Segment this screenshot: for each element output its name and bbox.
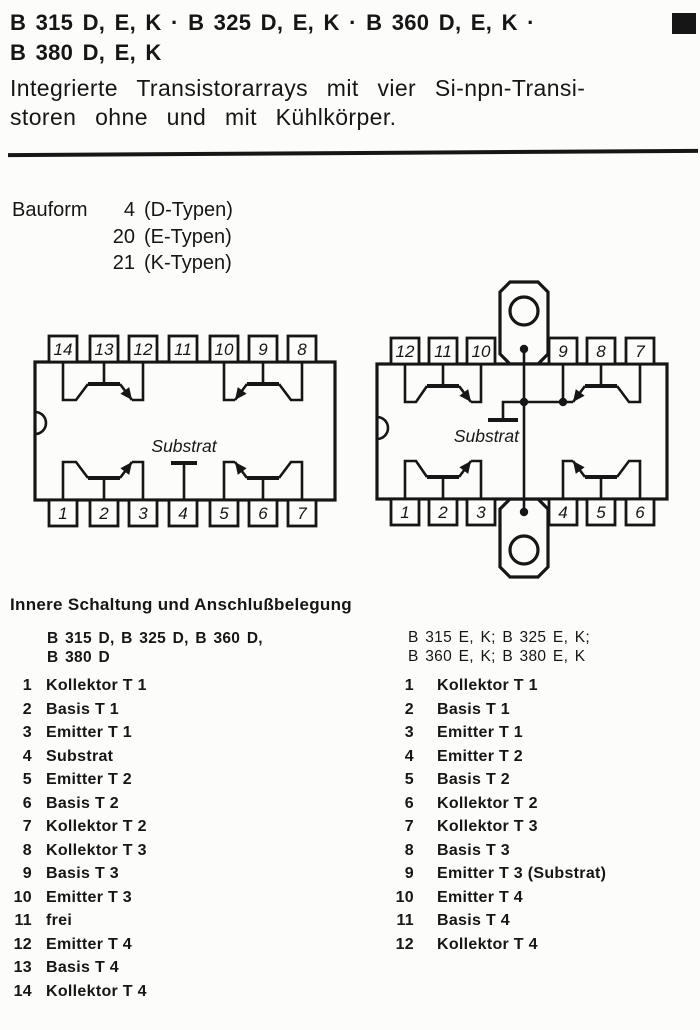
pin-number: 10 [6, 889, 32, 907]
subtitle-line-1: Integrierte Transistorarrays mit vier Si… [10, 74, 585, 103]
pin-function-label: Kollektor T 1 [437, 677, 538, 695]
pin-number: 8 [388, 842, 414, 860]
pin-list-item: 6 Basis T 2 [6, 795, 147, 819]
pin-number: 4 [388, 748, 414, 766]
pin-number: 9 [388, 865, 414, 883]
bauform-number: 20 [108, 224, 135, 251]
pin-list-item: 8 Kollektor T 3 [6, 842, 147, 866]
pinout-right-title: B 315 E, K; B 325 E, K; B 360 E, K; B 38… [408, 628, 590, 666]
pin-list-item: 7 Kollektor T 2 [6, 818, 147, 842]
pin-function-label: Kollektor T 3 [437, 818, 538, 836]
bauform-description: (K-Typen) [144, 250, 232, 277]
substrate-label: Substrat [151, 436, 217, 456]
pin-function-label: Emitter T 3 [46, 889, 132, 907]
pin-function-label: Basis T 1 [437, 701, 510, 719]
pin-number: 11 [174, 340, 192, 359]
pin-number: 3 [6, 724, 32, 742]
pin-list-d-types: 1 Kollektor T 1 2 Basis T 1 3 Emitter T … [6, 677, 147, 1006]
pin-number: 8 [596, 342, 606, 361]
pin-number: 3 [138, 504, 148, 523]
pinout-left-title-line-1: B 315 D, B 325 D, B 360 D, [47, 629, 263, 648]
pin-function-label: Kollektor T 4 [46, 983, 147, 1001]
page-title: B 315 D, E, K · B 325 D, E, K · B 360 D,… [10, 8, 535, 68]
pin-number: 1 [6, 677, 32, 695]
pin-function-label: Kollektor T 2 [437, 795, 538, 813]
pin-number: 2 [388, 701, 414, 719]
substrate-label: Substrat [454, 426, 520, 446]
pin-number: 8 [297, 340, 307, 359]
pin-number: 6 [6, 795, 32, 813]
pin-number: 14 [54, 340, 73, 359]
pin-function-label: Kollektor T 3 [46, 842, 147, 860]
pinout-right-title-line-2: B 360 E, K; B 380 E, K [408, 647, 590, 666]
pin-function-label: Basis T 4 [46, 959, 119, 977]
pin-function-label: Emitter T 1 [46, 724, 132, 742]
pin-function-label: Basis T 3 [437, 842, 510, 860]
title-line-2: B 380 D, E, K [10, 38, 535, 68]
pin-function-label: Kollektor T 2 [46, 818, 147, 836]
pin-list-item: 12 Emitter T 4 [6, 936, 147, 960]
pin-list-item: 7 Kollektor T 3 [388, 818, 606, 842]
pin-function-label: Basis T 1 [46, 701, 119, 719]
bauform-number: 4 [108, 197, 135, 224]
pin-list-item: 5 Basis T 2 [388, 771, 606, 795]
pin-number: 5 [219, 504, 229, 523]
pin-number: 2 [437, 503, 448, 522]
pin-list-item: 3 Emitter T 1 [388, 724, 606, 748]
pin-function-label: Emitter T 1 [437, 724, 523, 742]
pin-number: 14 [6, 983, 32, 1001]
bauform-description: (D-Typen) [144, 197, 233, 224]
bauform-entries: 4 (D-Typen) 20 (E-Typen) 21 (K-Typen) [108, 197, 233, 277]
pin-function-label: Basis T 2 [437, 771, 510, 789]
pin-number: 9 [258, 340, 268, 359]
pin-number: 6 [388, 795, 414, 813]
dip12-package-diagram: 12 11 10 9 8 7 1 2 3 4 5 6 [368, 275, 678, 585]
top-pin-row: 14 13 12 11 10 9 8 [49, 336, 316, 362]
pin-list-item: 11 frei [6, 912, 147, 936]
pin-number: 7 [635, 342, 645, 361]
pin-number: 13 [95, 340, 114, 359]
pin-number: 7 [6, 818, 32, 836]
pin-list-item: 1 Kollektor T 1 [388, 677, 606, 701]
bauform-entry: 20 (E-Typen) [108, 224, 233, 251]
pin-list-item: 13 Basis T 4 [6, 959, 147, 983]
page-subtitle: Integrierte Transistorarrays mit vier Si… [10, 74, 585, 132]
pin-list-item: 5 Emitter T 2 [6, 771, 147, 795]
pin-number: 10 [472, 342, 491, 361]
divider-rule [8, 149, 698, 157]
pin-number: 1 [58, 504, 67, 523]
pinout-left-title: B 315 D, B 325 D, B 360 D, B 380 D [47, 629, 263, 667]
pin-number: 1 [400, 503, 409, 522]
mounting-hole [510, 536, 538, 564]
pin-list-item: 9 Emitter T 3 (Substrat) [388, 865, 606, 889]
bauform-number: 21 [108, 250, 135, 277]
bauform-description: (E-Typen) [144, 224, 232, 251]
pin-number: 12 [6, 936, 32, 954]
corner-index-mark [672, 13, 696, 34]
pin-list-item: 10 Emitter T 4 [388, 889, 606, 913]
pin-number: 7 [388, 818, 414, 836]
pin-list-item: 14 Kollektor T 4 [6, 983, 147, 1007]
pin-number: 7 [297, 504, 307, 523]
pin-number: 5 [6, 771, 32, 789]
pinout-heading: Innere Schaltung und Anschlußbelegung [10, 595, 352, 615]
pin-number: 11 [434, 342, 452, 361]
datasheet-page: B 315 D, E, K · B 325 D, E, K · B 360 D,… [0, 0, 700, 1030]
package-outline [377, 364, 667, 499]
mounting-hole [510, 297, 538, 325]
bauform-section: Bauform 4 (D-Typen) 20 (E-Typen) 21 (K-T… [12, 197, 233, 277]
pin-list-item: 3 Emitter T 1 [6, 724, 147, 748]
pin-function-label: Emitter T 4 [46, 936, 132, 954]
pin-number: 6 [635, 503, 645, 522]
pin-list-item: 4 Substrat [6, 748, 147, 772]
pin-number: 2 [6, 701, 32, 719]
pin-number: 12 [134, 340, 153, 359]
pin-function-label: Substrat [46, 748, 113, 766]
pin-list-item: 2 Basis T 1 [388, 701, 606, 725]
pin-function-label: Basis T 4 [437, 912, 510, 930]
pin-list-item: 8 Basis T 3 [388, 842, 606, 866]
pin-function-label: Kollektor T 1 [46, 677, 147, 695]
title-line-1: B 315 D, E, K · B 325 D, E, K · B 360 D,… [10, 8, 535, 38]
pinout-right-title-line-1: B 315 E, K; B 325 E, K; [408, 628, 590, 647]
pin-list-item: 10 Emitter T 3 [6, 889, 147, 913]
pin-number: 2 [98, 504, 109, 523]
pin-number: 4 [558, 503, 567, 522]
pin-list-ek-types: 1 Kollektor T 1 2 Basis T 1 3 Emitter T … [388, 677, 606, 959]
pin-number: 6 [258, 504, 268, 523]
pin-function-label: Emitter T 2 [437, 748, 523, 766]
subtitle-line-2: storen ohne und mit Kühlkörper. [10, 103, 585, 132]
pin-number: 12 [396, 342, 415, 361]
pin-number: 4 [6, 748, 32, 766]
pin-number: 12 [388, 936, 414, 954]
pin-function-label: Basis T 3 [46, 865, 119, 883]
pin-number: 11 [388, 912, 414, 930]
pin-number: 8 [6, 842, 32, 860]
pin-function-label: Kollektor T 4 [437, 936, 538, 954]
pin-function-label: Emitter T 4 [437, 889, 523, 907]
pin-number: 10 [388, 889, 414, 907]
pin-number: 1 [388, 677, 414, 695]
pin-list-item: 1 Kollektor T 1 [6, 677, 147, 701]
pin-function-label: Emitter T 3 (Substrat) [437, 865, 606, 883]
pin-function-label: frei [46, 912, 72, 930]
pin-number: 10 [215, 340, 234, 359]
pin-number: 3 [388, 724, 414, 742]
bottom-pin-row: 1 2 3 4 5 6 7 [49, 500, 316, 526]
bauform-entry: 21 (K-Typen) [108, 250, 233, 277]
pin-number: 9 [558, 342, 568, 361]
pinout-left-title-line-2: B 380 D [47, 648, 263, 667]
pin-function-label: Emitter T 2 [46, 771, 132, 789]
pin-number: 3 [476, 503, 486, 522]
pin-number: 5 [596, 503, 606, 522]
dip14-package-diagram: 14 13 12 11 10 9 8 1 2 3 4 5 6 7 [30, 328, 345, 538]
pin-number: 4 [178, 504, 187, 523]
pin-list-item: 2 Basis T 1 [6, 701, 147, 725]
bauform-label: Bauform [12, 197, 88, 224]
pin-number: 5 [388, 771, 414, 789]
pin-list-item: 6 Kollektor T 2 [388, 795, 606, 819]
pin-number: 13 [6, 959, 32, 977]
pin-list-item: 9 Basis T 3 [6, 865, 147, 889]
pin-number: 11 [6, 912, 32, 930]
pin-list-item: 12 Kollektor T 4 [388, 936, 606, 960]
pin-list-item: 4 Emitter T 2 [388, 748, 606, 772]
bauform-entry: 4 (D-Typen) [108, 197, 233, 224]
pin-number: 9 [6, 865, 32, 883]
pin-function-label: Basis T 2 [46, 795, 119, 813]
pin-list-item: 11 Basis T 4 [388, 912, 606, 936]
